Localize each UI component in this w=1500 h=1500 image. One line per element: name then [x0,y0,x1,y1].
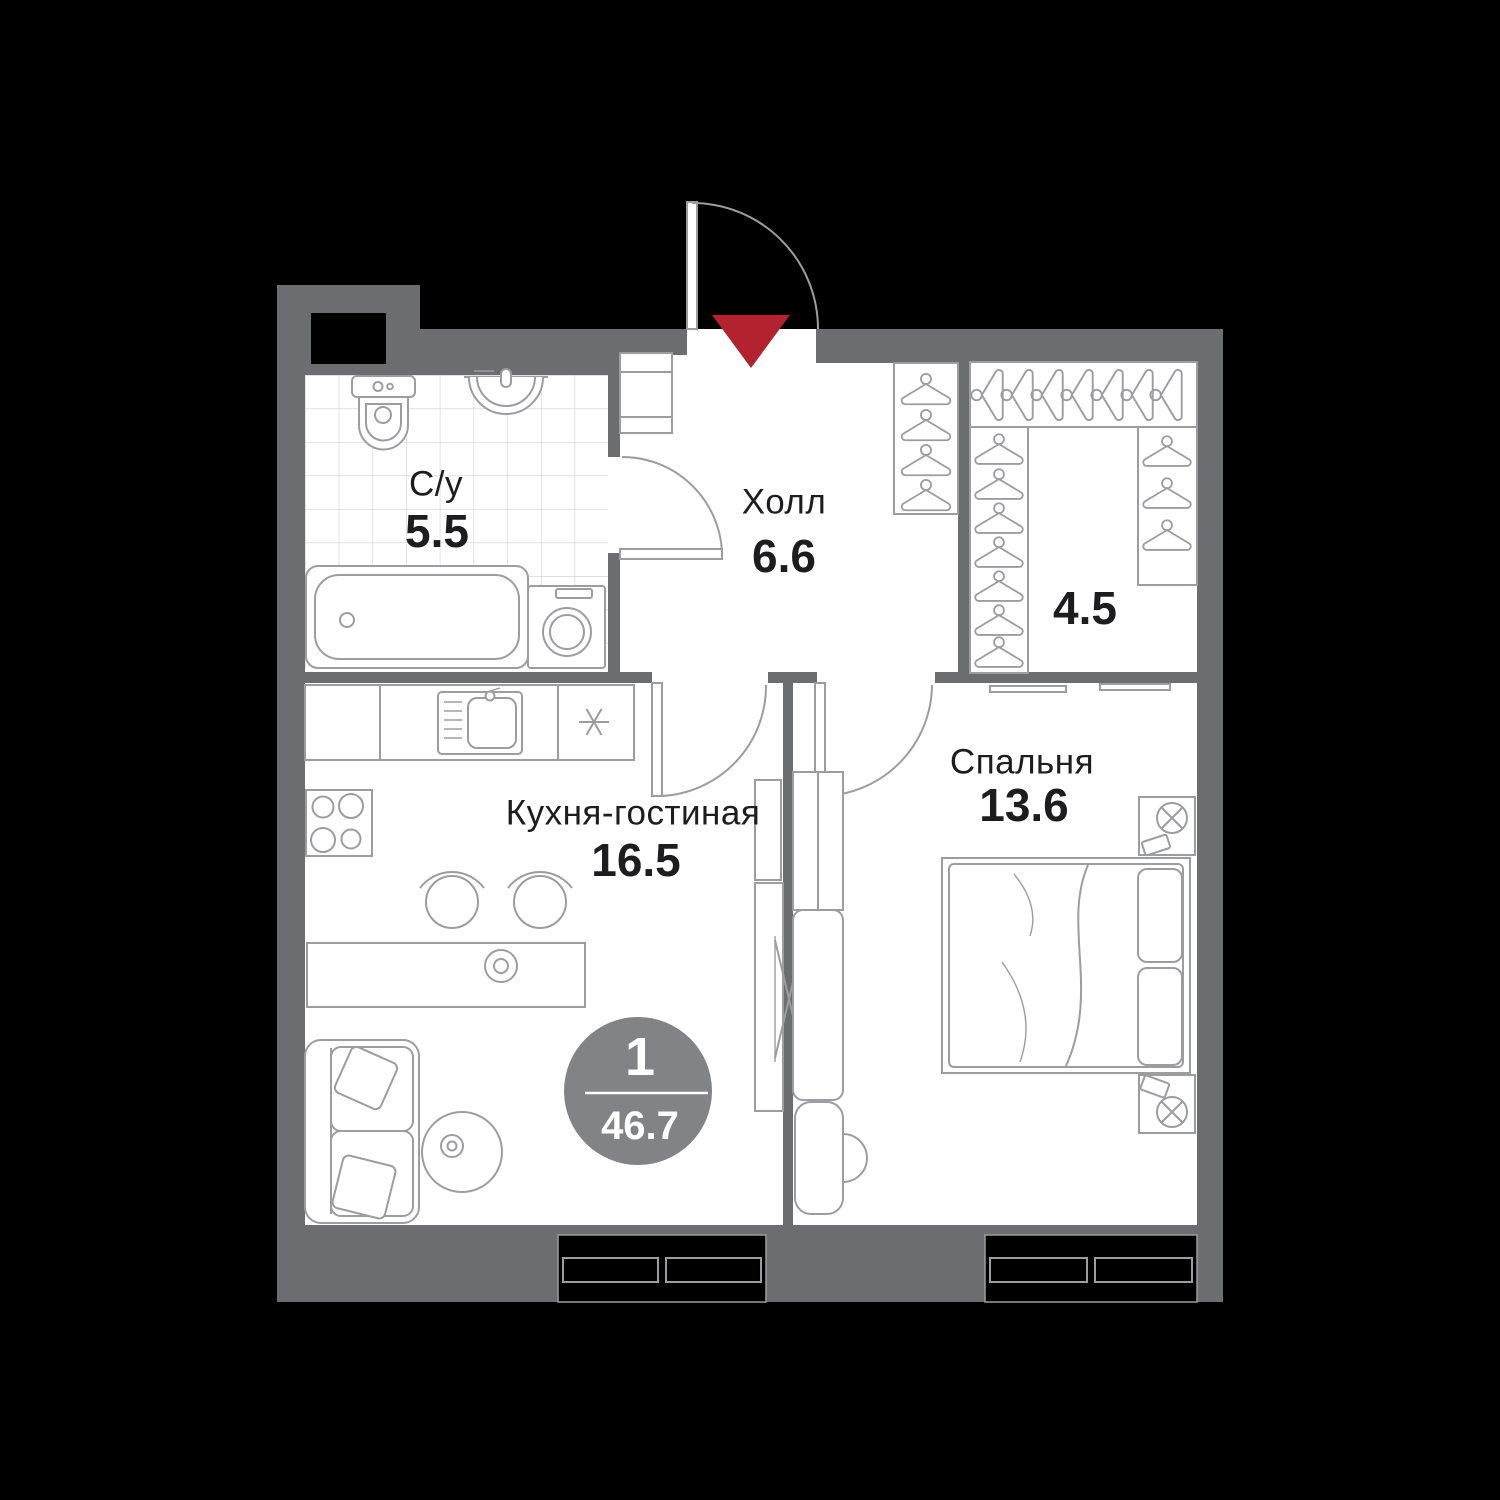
area-badge: 1 46.7 [564,1017,712,1165]
wardrobe-area: 4.5 [1053,582,1117,634]
floorplan-svg: С/у 5.5 Холл 6.6 4.5 Кухня-гостиная 16.5… [0,0,1500,1500]
hall-name: Холл [742,483,827,522]
closet-track [1100,684,1170,690]
bathroom-name: С/у [409,465,463,504]
entrance-door-swing [692,203,818,329]
kitchen-window [558,1235,766,1302]
nightstand-icon [1139,797,1195,856]
washing-machine-icon [528,586,605,668]
window-sill [558,1225,766,1235]
wall-right [1197,329,1223,1302]
wall-bathroom-upper [608,355,620,457]
wall-hall-wardrobe [958,363,970,673]
floorplan-page: С/у 5.5 Холл 6.6 4.5 Кухня-гостиная 16.5… [0,0,1500,1500]
wall-bottom-left [277,1225,558,1302]
hall-area: 6.6 [752,530,816,582]
pillow-icon [1138,968,1182,1065]
wall-top-bathroom [420,329,612,375]
coffee-table-icon [422,1112,502,1192]
wall-bathroom-lower [608,553,620,683]
wall-bottom-pier [766,1225,985,1302]
badge-rooms-count: 1 [625,1027,655,1087]
bathroom-door-leaf [620,549,722,559]
bed-icon [942,858,1190,1073]
bedroom-area: 13.6 [979,779,1069,831]
badge-total-area: 46.7 [601,1104,679,1148]
wall-top-right [816,329,1223,363]
island-counter [307,943,585,1007]
bedroom-cabinet [793,772,843,910]
pillow-icon [331,1154,396,1219]
wall-top-hall-left [600,329,687,355]
closet-track [990,686,1066,692]
nightstand-icon [1139,1075,1195,1133]
bedroom-name: Спальня [950,743,1094,782]
wall-kitchen-bedroom [783,683,793,1225]
bedroom-window [985,1235,1197,1302]
stove-icon [306,790,372,856]
kitchen-area: 16.5 [591,834,681,886]
shaft-notch [311,313,386,364]
entrance-door-leaf [687,202,697,329]
wall-stub [768,672,817,683]
hall-cabinet [620,353,672,433]
kitchen-door-leaf [652,683,662,796]
pillow-icon [1138,869,1182,962]
desk-icon [793,910,843,1100]
bathtub-icon [306,566,528,668]
wall-kitchen-top [277,672,652,683]
bathroom-area: 5.5 [405,505,469,557]
window-sill [985,1225,1197,1235]
sofa-icon [305,1040,419,1223]
kitchen-name: Кухня-гостиная [506,794,761,833]
hall-hanger-rack [894,363,958,514]
kitchen-sink-icon [438,688,522,754]
wall-left [277,285,305,1302]
